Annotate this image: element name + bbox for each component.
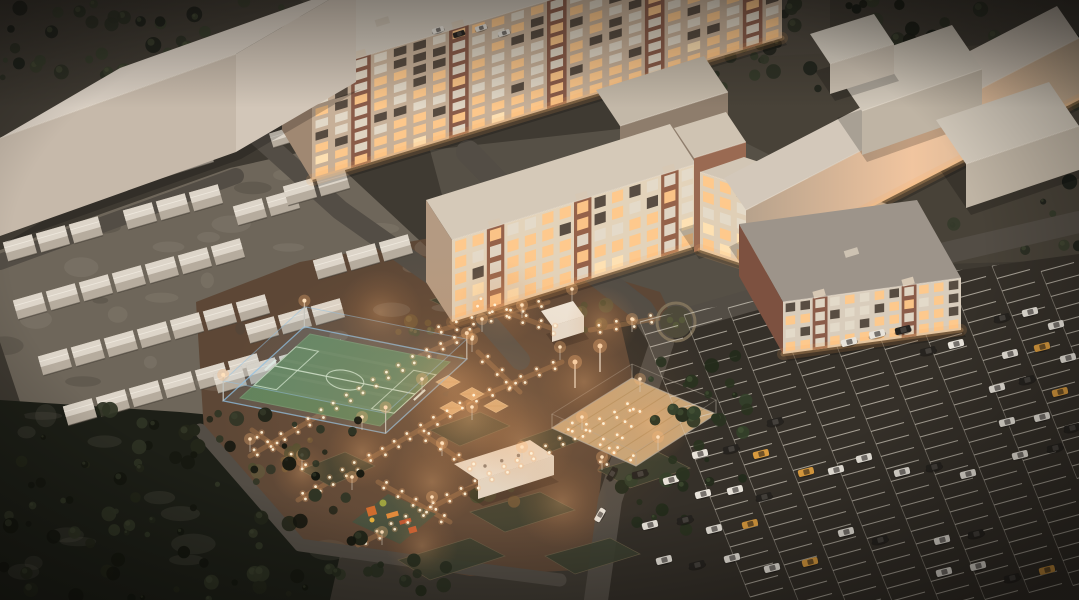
fx-layer xyxy=(0,0,1079,600)
vignette xyxy=(0,0,1079,600)
render-canvas xyxy=(0,0,1079,600)
aerial-dusk-residential-render xyxy=(0,0,1079,600)
